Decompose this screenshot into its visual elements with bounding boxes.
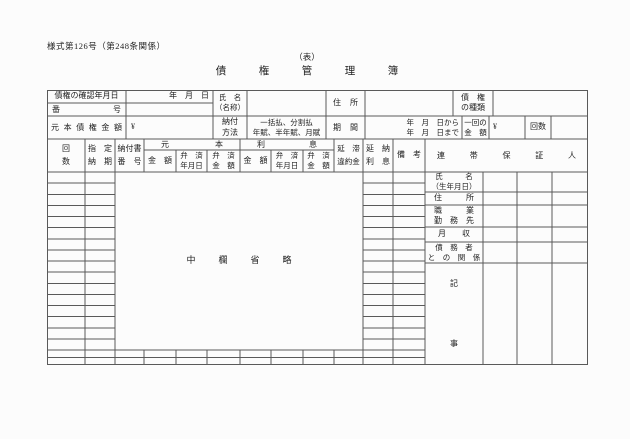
guarantor-column-field-2 [517,172,552,365]
header-payment-slip-column: 納付書番 号 [115,139,144,172]
name-field [247,90,326,116]
principal-amount-label: 元本債権金額 [47,116,126,139]
guarantor-occupation-label: 職 業 勤 務 先 [425,205,483,227]
payment-method-label: 納付 方法 [213,116,247,139]
address-field [365,90,453,116]
header-interest-repay-amount: 弁 済金 額 [303,150,334,172]
header-interest-group: 利 息 [240,139,334,150]
principal-amount-field: ¥ [126,116,213,139]
number-label: 番 号 [47,103,126,116]
confirm-date-label: 債権の確認年月日 [47,90,126,103]
number-field [126,103,213,116]
header-remarks-column: 備 考 [393,139,425,172]
claim-type-label: 債 権 の種類 [453,90,493,116]
installment-amount-label: 一回の 金 額 [462,116,489,139]
header-guarantor-group: 連 帯 保 証 人 [425,139,588,172]
ledger-form-page: 様式第126号（第248条関係） （表） 債 権 管 理 簿 [0,0,630,439]
period-field: 年 月 日から 年 月 日まで [365,116,462,139]
header-times-column: 回数 [47,139,85,172]
payment-method-options: 一括払、分割払 年賦、半年賦、月賦 [247,116,326,139]
period-label: 期 間 [326,116,365,139]
yen-sign: ¥ [493,122,497,132]
guarantor-column-field-1 [483,172,517,365]
header-principal-amount: 金 額 [144,150,176,172]
deferred-remarks-rows-area [363,172,425,350]
address-label: 住 所 [326,90,365,116]
guarantor-name-label: 氏 名 （生年月日） [425,172,483,192]
yen-sign: ¥ [131,122,135,132]
installment-count-label: 回数 [525,116,551,139]
guarantor-address-label: 住 所 [425,192,483,205]
installment-count-field [551,116,588,139]
omitted-note: 中 欄 省 略 [179,255,298,267]
omitted-middle-area: 中 欄 省 略 [115,172,363,350]
installment-amount-field: ¥ [489,116,525,139]
guarantor-notes-label: 記 事 [425,263,483,365]
header-late-penalty-column: 延 滞違約金 [334,139,363,172]
header-interest-repay-date: 弁 済年月日 [271,150,303,172]
guarantor-relation-label: 債 務 者 と の 関 係 [425,242,483,263]
header-interest-amount: 金 額 [240,150,271,172]
ledger-table: 債権の確認年月日 年 月 日 番 号 氏 名 （名称） 住 所 債 権 の種類 … [47,90,588,365]
page-title: 債 権 管 理 簿 [47,63,567,78]
confirm-date-field: 年 月 日 [126,90,213,103]
guarantor-income-label: 月 収 [425,227,483,242]
header-principal-group: 元 本 [144,139,240,150]
claim-type-field [493,90,588,116]
header-deferred-interest-column: 延 納利 息 [363,139,393,172]
header-principal-repay-amount: 弁 済金 額 [207,150,240,172]
header-due-date-column: 指 定納 期 [85,139,115,172]
header-principal-repay-date: 弁 済年月日 [176,150,207,172]
guarantor-column-field-3 [552,172,588,365]
name-label: 氏 名 （名称） [213,90,247,116]
side-label: （表） [47,51,567,63]
installment-rows-area [47,172,115,350]
